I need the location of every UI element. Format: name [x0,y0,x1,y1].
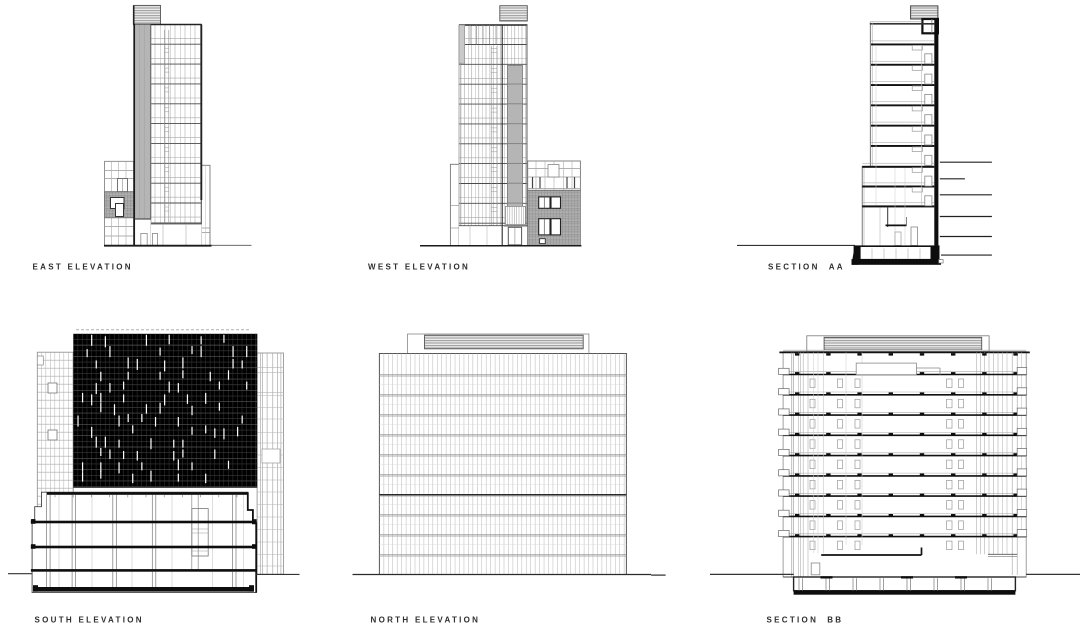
svg-text:NORTH ELEVATION: NORTH ELEVATION [371,616,481,625]
svg-text:SECTION AA: SECTION AA [768,263,845,272]
svg-text:EAST ELEVATION: EAST ELEVATION [33,263,133,272]
svg-text:WEST ELEVATION: WEST ELEVATION [368,263,470,272]
svg-text:SECTION BB: SECTION BB [767,616,844,625]
svg-text:SOUTH ELEVATION: SOUTH ELEVATION [35,616,144,625]
